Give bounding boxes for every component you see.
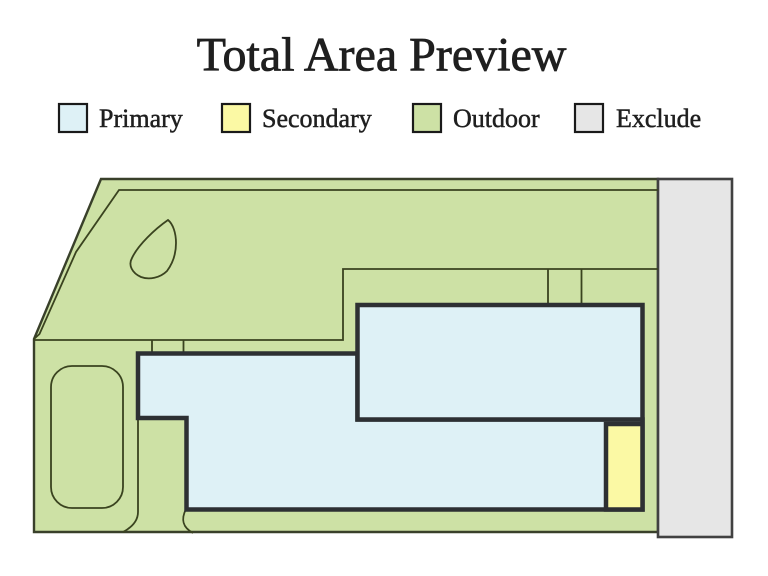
svg-text:Total Area Preview: Total Area Preview [197, 29, 567, 82]
svg-text:Primary: Primary [99, 104, 183, 133]
svg-text:Outdoor: Outdoor [453, 104, 540, 133]
svg-text:Exclude: Exclude [616, 104, 701, 133]
svg-text:Secondary: Secondary [262, 104, 372, 133]
